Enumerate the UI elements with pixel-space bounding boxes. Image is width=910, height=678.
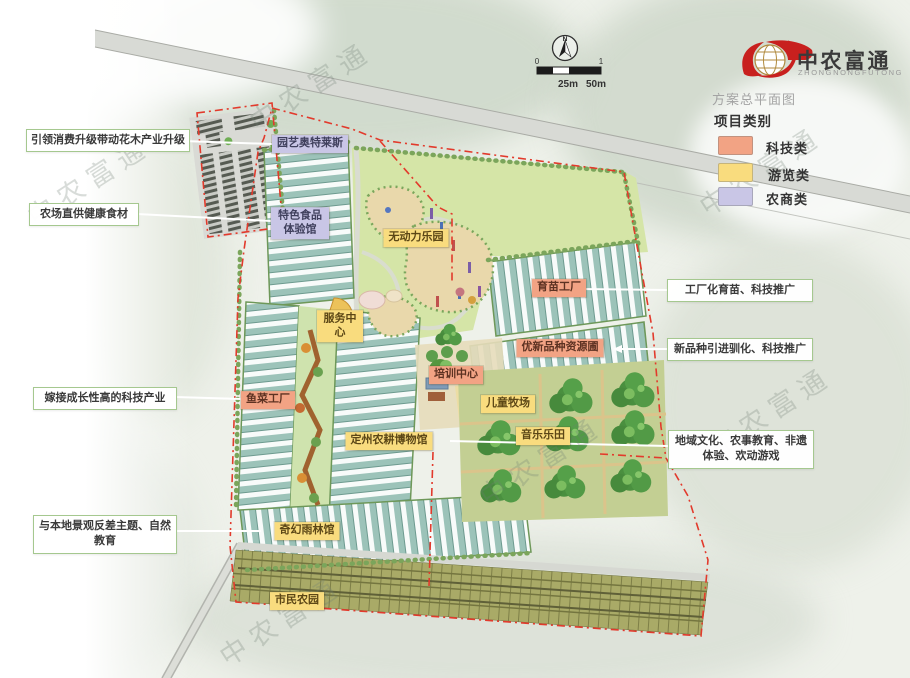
plan-label-fish-vegetable-factory: 鱼菜工厂 [241,391,295,409]
bottom-left-lane [162,543,244,678]
legend-label-tech: 科技类 [766,138,808,157]
plan-label-training-center: 培训中心 [429,366,483,384]
callout-flower-industry: 引领消费升级带动花木产业升级 [26,129,190,152]
scale-bar: 0 1 25m 50m [535,57,606,90]
callout-variety-promotion: 新品种引进驯化、科技推广 [667,338,813,361]
plan-label-unpowered-park: 无动力乐园 [384,229,449,247]
scale-label-25m: 25m [558,79,578,90]
scale-tick-start: 0 [535,57,540,66]
plan-label-children-ranch: 儿童牧场 [481,395,535,413]
legend-label-tour: 游览类 [768,165,810,184]
plan-label-music-field: 音乐乐田 [516,427,570,445]
scale-label-50m: 50m [586,79,606,90]
callout-healthy-food: 农场直供健康食材 [29,203,139,226]
north-compass: N [553,36,578,61]
scale-tick-end: 1 [599,57,604,66]
plan-label-seedling-factory: 育苗工厂 [532,279,586,297]
plan-label-citizen-farm: 市民农园 [270,592,324,610]
plan-label-farming-museum: 定州农耕博物馆 [346,432,433,450]
legend-label-agri: 农商类 [766,189,808,208]
callout-tech-industry: 嫁接成长性高的科技产业 [33,387,177,410]
callout-nature-education: 与本地景观反差主题、自然教育 [33,515,177,554]
legend-swatch-tour [718,163,753,182]
plan-label-service-center: 服务中心 [317,310,363,342]
legend-swatch-agri [718,187,753,206]
callout-culture-education: 地域文化、农事教育、非遗体验、欢动游戏 [668,430,814,469]
plan-label-rainforest-hall: 奇幻雨林馆 [275,522,340,540]
callout-seedling-promotion: 工厂化育苗、科技推广 [667,279,813,302]
legend-swatch-tech [718,136,753,155]
greenhouse-museum-east [329,310,420,528]
master-plan-canvas: N 0 1 25m 50m 中农富通 中农富通 中农富通 中农富通 [0,0,910,678]
plan-label-variety-resource-garden: 优新品种资源圃 [517,339,604,357]
plan-label-food-experience-hall: 特色食品体验馆 [271,207,329,239]
plan-label-horticulture-outlets: 园艺奥特莱斯 [272,135,348,153]
plan-subtitle: 方案总平面图 [712,89,796,108]
lawn-path [356,150,358,330]
brand-latin-name: ZHONGNONGFUTONG [798,68,903,77]
greenhouse-fish-vegetable-west [238,302,299,516]
legend-title: 项目类别 [714,110,772,130]
